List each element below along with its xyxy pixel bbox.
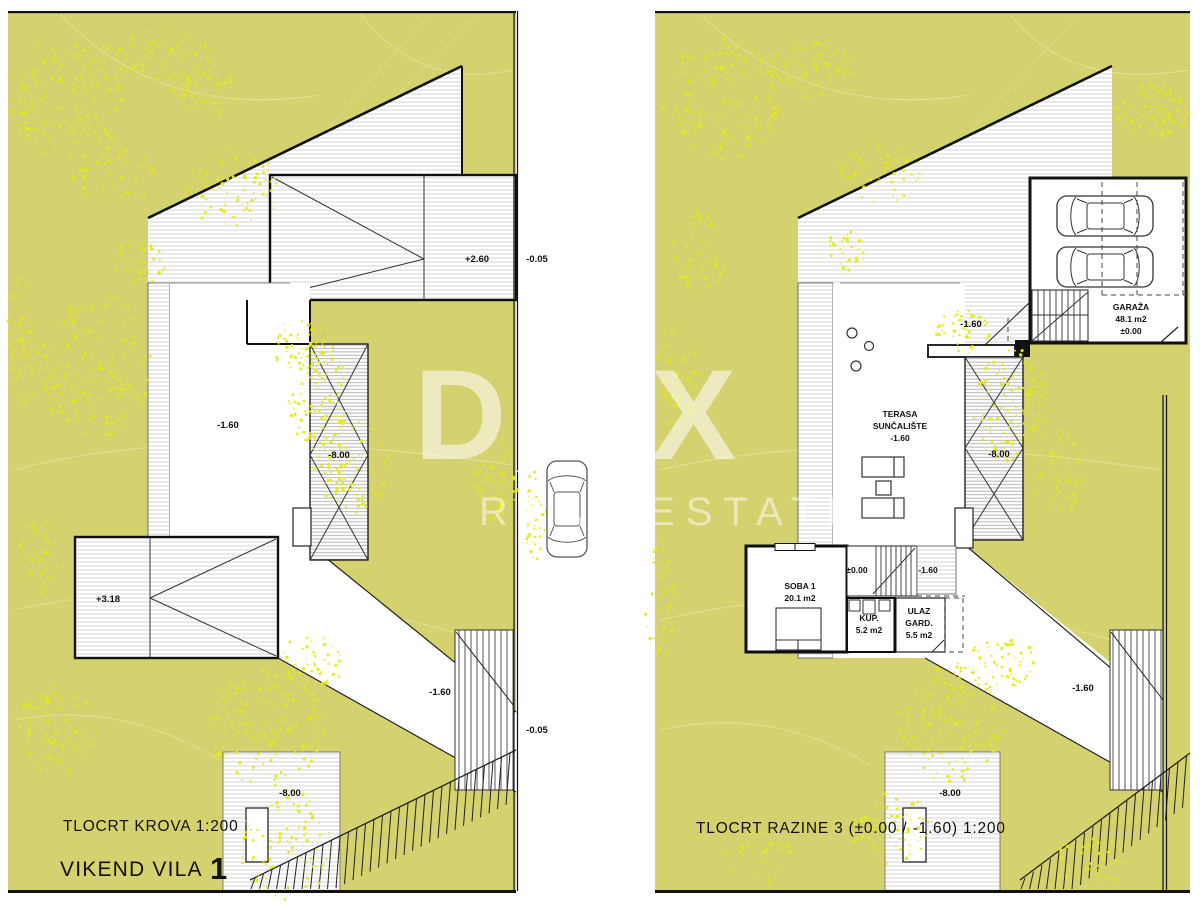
elevation-label: -1.60 — [960, 319, 982, 330]
room-label-terrace: SUNČALIŠTE — [873, 420, 928, 431]
garage — [1008, 178, 1190, 345]
room-area-garage: 48.1 m2 — [1115, 314, 1146, 324]
project-name: VIKEND VILA — [60, 858, 203, 881]
elevation-label: -8.00 — [988, 449, 1010, 460]
room-label-terrace: TERASA — [883, 409, 918, 419]
room-label-kup: KUP. — [859, 613, 878, 623]
elevation-label: -8.00 — [279, 788, 301, 799]
room-area-ulaz: 5.5 m2 — [906, 630, 933, 640]
room-label-soba: SOBA 1 — [784, 581, 816, 591]
elevation-label: -1.60 — [217, 420, 239, 431]
visitor-car-icon — [547, 461, 587, 557]
right-plan-title: TLOCRT RAZINE 3 (±0.00 / -1.60) 1:200 — [696, 820, 1006, 837]
level-plan-panel — [655, 11, 1190, 893]
elevation-label: -1.60 — [918, 565, 938, 575]
plan-drawing: +2.60 -0.05 -1.60 -8.00 +3.18 -1.60 -0.0… — [0, 0, 1200, 908]
elevation-label: +2.60 — [465, 254, 489, 265]
chimney — [293, 508, 311, 546]
elevation-label: -8.00 — [939, 788, 961, 799]
room-label-ulaz: GARD. — [905, 618, 932, 628]
left-plan-title: TLOCRT KROVA 1:200 — [63, 818, 239, 835]
elevation-label: -0.05 — [526, 254, 548, 265]
elevation-label: ±0.00 — [846, 565, 867, 575]
room-area-kup: 5.2 m2 — [856, 625, 883, 635]
garage-stairs — [1032, 290, 1088, 341]
elevation-label: +3.18 — [96, 594, 120, 605]
room-level-garage: ±0.00 — [1120, 326, 1141, 336]
steps-band — [1110, 630, 1163, 790]
roof-plan-panel — [8, 11, 518, 893]
chimney — [955, 508, 973, 548]
room-level-terrace: -1.60 — [890, 433, 910, 443]
elevation-label: -0.05 — [526, 725, 548, 736]
room-label-ulaz: ULAZ — [908, 606, 931, 616]
elevation-label: -8.00 — [328, 450, 350, 461]
project-number: 1 — [210, 851, 227, 886]
upper-roof — [270, 175, 516, 300]
elevation-label: -1.60 — [1072, 683, 1094, 694]
elevation-label: -1.60 — [429, 687, 451, 698]
room-area-soba: 20.1 m2 — [784, 593, 815, 603]
pool — [246, 808, 268, 862]
room-label-garage: GARAŽA — [1113, 301, 1149, 312]
architectural-drawing-sheet: +2.60 -0.05 -1.60 -8.00 +3.18 -1.60 -0.0… — [0, 0, 1200, 908]
